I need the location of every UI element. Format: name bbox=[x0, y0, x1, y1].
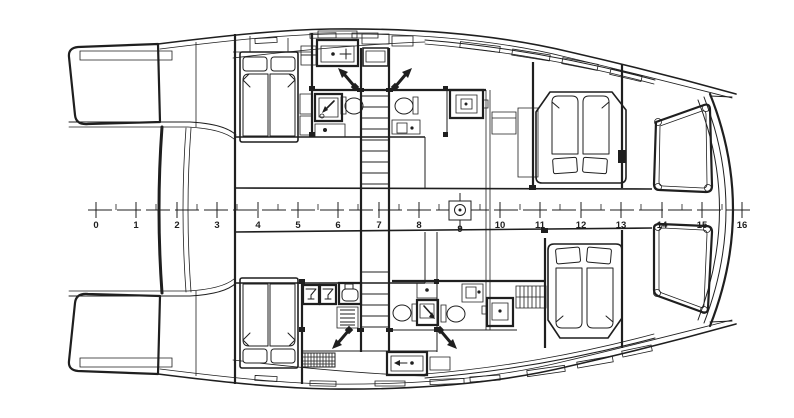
ruler-label: 2 bbox=[174, 220, 179, 231]
berth-platform bbox=[536, 92, 626, 183]
locker bbox=[518, 108, 538, 177]
ruler-label: 15 bbox=[697, 220, 708, 231]
toilet bbox=[393, 305, 411, 321]
toilet bbox=[447, 306, 465, 322]
mast-marker bbox=[449, 193, 471, 229]
hanging-locker bbox=[516, 286, 546, 308]
ruler-label: 3 bbox=[214, 220, 219, 231]
toilet-tank bbox=[413, 97, 418, 114]
galley-bottom bbox=[302, 283, 450, 375]
ruler-label: 12 bbox=[576, 220, 587, 231]
mattress bbox=[583, 96, 609, 154]
mattress bbox=[556, 268, 582, 328]
hull-outline bbox=[158, 29, 736, 389]
companionway-stairs bbox=[357, 48, 393, 352]
pillow bbox=[271, 349, 295, 363]
pillow bbox=[553, 157, 578, 174]
hatch-arrow bbox=[436, 326, 457, 349]
pillow bbox=[582, 157, 607, 174]
hatch-arrow bbox=[332, 326, 353, 349]
pillow bbox=[586, 247, 611, 264]
cooler-coil bbox=[337, 307, 358, 328]
ruler-label: 8 bbox=[416, 220, 421, 231]
hatch-arrow bbox=[338, 68, 359, 91]
pillow bbox=[271, 57, 295, 71]
pillow bbox=[555, 247, 580, 264]
ruler-label: 5 bbox=[295, 220, 301, 231]
ruler-label: 7 bbox=[376, 220, 381, 231]
ruler-label: 1 bbox=[133, 220, 139, 231]
ruler-label: 0 bbox=[93, 220, 98, 231]
wine-glass-icon bbox=[303, 285, 319, 304]
deck-plan-drawing: 0 1 2 3 4 5 6 7 8 9 10 11 12 13 14 15 16 bbox=[0, 0, 794, 418]
head-port-top bbox=[315, 94, 363, 137]
cabin-stbd-bottom bbox=[516, 244, 622, 338]
toilet bbox=[395, 98, 413, 114]
pillow bbox=[243, 57, 267, 71]
hatch-arrow bbox=[391, 68, 412, 91]
galley-cabinets-top bbox=[301, 31, 413, 66]
head-center-top bbox=[392, 90, 516, 134]
ruler-label: 6 bbox=[335, 220, 340, 231]
stove-icon bbox=[339, 283, 361, 304]
washbasin bbox=[392, 120, 420, 134]
pillow bbox=[243, 349, 267, 363]
mattress bbox=[587, 268, 613, 328]
washbasin bbox=[315, 124, 345, 137]
stern-platforms bbox=[69, 44, 236, 374]
seat bbox=[492, 112, 516, 134]
head-stbd-bottom bbox=[441, 284, 513, 326]
cabin-stbd-top bbox=[518, 92, 626, 183]
floor-grate bbox=[302, 353, 335, 367]
toilet-tank bbox=[441, 305, 446, 322]
ruler-label: 4 bbox=[255, 220, 261, 231]
head-port-bottom bbox=[393, 283, 438, 325]
ruler-label: 13 bbox=[616, 220, 627, 231]
wine-glass-icon bbox=[320, 285, 336, 304]
scale-ruler: 0 1 2 3 4 5 6 7 8 9 10 11 12 13 14 15 16 bbox=[88, 193, 752, 235]
tap-icon bbox=[340, 49, 351, 59]
nav-unit bbox=[387, 352, 427, 375]
deck-plan-canvas: 0 1 2 3 4 5 6 7 8 9 10 11 12 13 14 15 16 bbox=[0, 0, 794, 418]
cabin-port-fwd bbox=[240, 52, 312, 142]
ruler-label: 11 bbox=[535, 220, 546, 231]
cabin-port-aft bbox=[240, 278, 298, 368]
ruler-label: 16 bbox=[737, 220, 748, 231]
ruler-label: 10 bbox=[495, 220, 506, 231]
ruler-label: 14 bbox=[657, 220, 668, 231]
mattress bbox=[552, 96, 578, 154]
